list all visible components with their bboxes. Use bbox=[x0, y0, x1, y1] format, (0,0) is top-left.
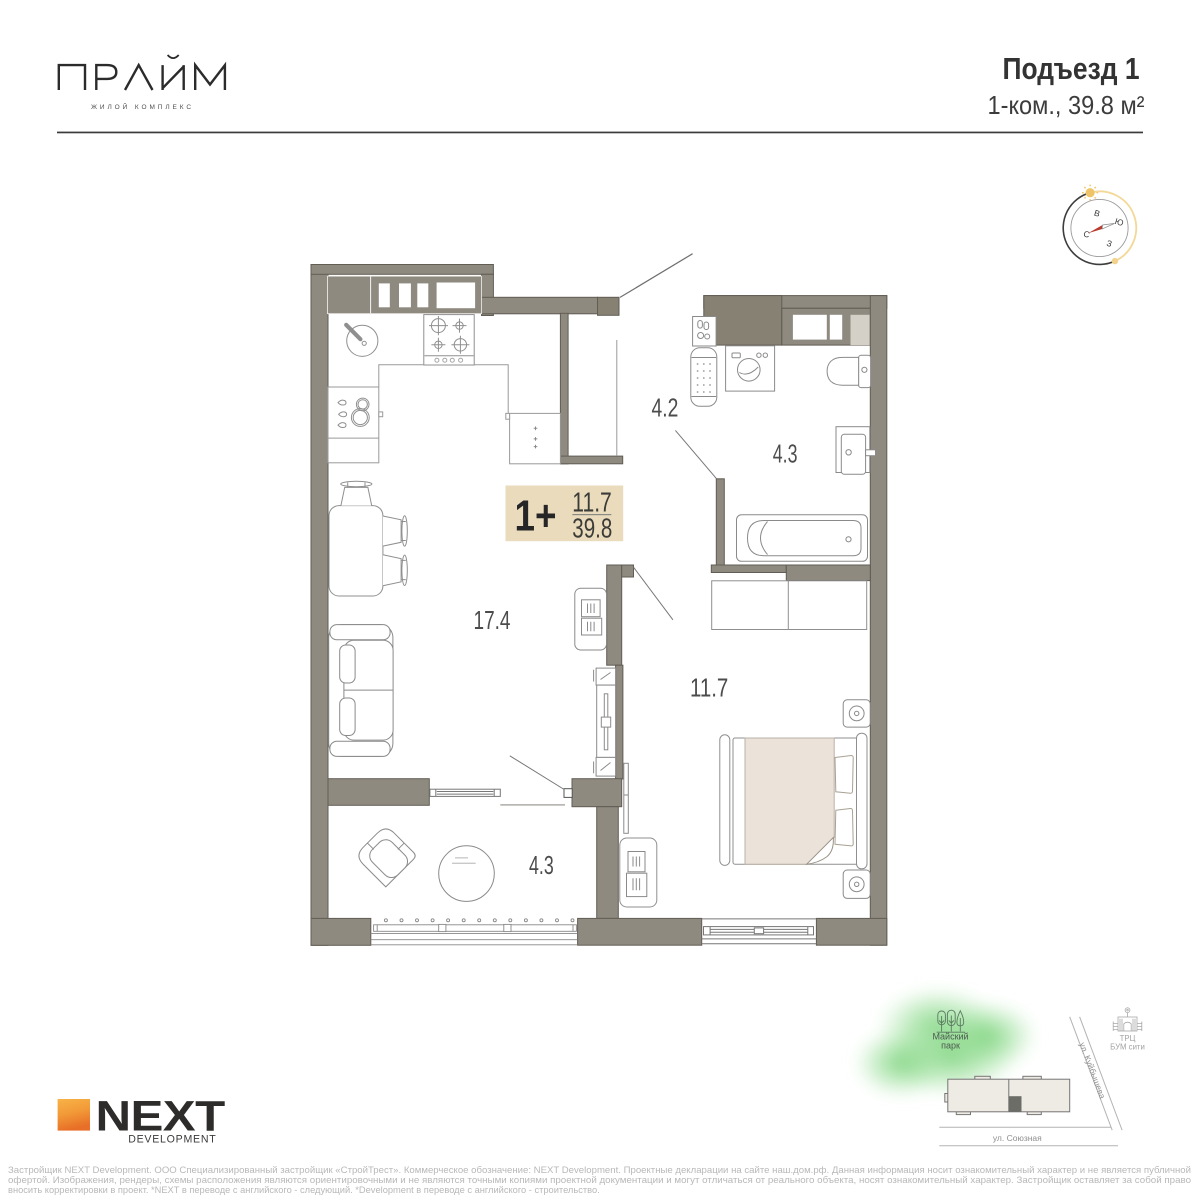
svg-text:ул. Союзная: ул. Союзная bbox=[993, 1133, 1042, 1143]
svg-text:DEVELOPMENT: DEVELOPMENT bbox=[128, 1134, 216, 1146]
svg-text:офертой. Изображения, рендеры,: офертой. Изображения, рендеры, схемы рас… bbox=[8, 1175, 1191, 1185]
svg-text:Подъезд 1: Подъезд 1 bbox=[1003, 51, 1140, 86]
svg-text:11.7: 11.7 bbox=[690, 673, 728, 703]
svg-text:ул. Куйбышева: ул. Куйбышева bbox=[1077, 1041, 1107, 1100]
svg-text:NEXT: NEXT bbox=[96, 1092, 226, 1140]
svg-text:вносить корректировки в проект: вносить корректировки в проект. *NEXT в … bbox=[8, 1185, 600, 1195]
svg-text:1-ком., 39.8 м²: 1-ком., 39.8 м² bbox=[988, 90, 1145, 120]
svg-text:БУМ сити: БУМ сити bbox=[1110, 1042, 1145, 1051]
svg-text:4.3: 4.3 bbox=[529, 850, 554, 880]
svg-text:17.4: 17.4 bbox=[474, 605, 511, 635]
svg-text:4.2: 4.2 bbox=[652, 393, 679, 423]
svg-text:1+: 1+ bbox=[515, 492, 557, 541]
svg-text:ЖИЛОЙ КОМПЛЕКС: ЖИЛОЙ КОМПЛЕКС bbox=[91, 102, 194, 111]
svg-text:Застройщик NEXT Development. О: Застройщик NEXT Development. ООО Специал… bbox=[8, 1165, 1191, 1175]
svg-text:39.8: 39.8 bbox=[572, 512, 612, 543]
svg-text:парк: парк bbox=[941, 1041, 960, 1051]
svg-text:4.3: 4.3 bbox=[773, 439, 798, 469]
